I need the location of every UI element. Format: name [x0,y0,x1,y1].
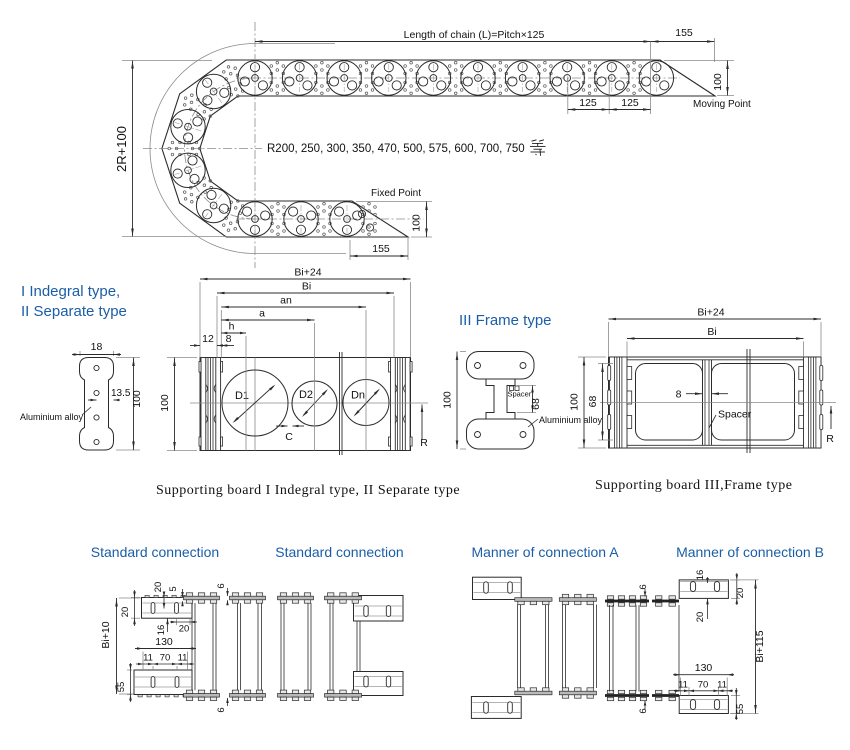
svg-text:100: 100 [569,393,581,411]
svg-text:Aluminium alloy: Aluminium alloy [20,412,84,422]
svg-text:a: a [259,308,265,320]
svg-text:an: an [280,295,292,307]
svg-text:Length of chain (L)=Pitch×125: Length of chain (L)=Pitch×125 [404,29,545,41]
svg-text:R: R [420,437,428,449]
svg-text:68: 68 [530,398,542,410]
svg-text:16: 16 [695,570,706,581]
svg-text:D1: D1 [235,390,249,402]
svg-text:Bi+10: Bi+10 [100,621,112,648]
svg-text:100: 100 [411,214,423,232]
svg-text:5: 5 [168,586,179,591]
svg-text:Bi: Bi [302,281,311,293]
svg-text:D2: D2 [299,389,313,401]
svg-text:I Indegral type,: I Indegral type, [21,283,120,300]
svg-text:70: 70 [698,680,709,691]
svg-text:100: 100 [159,394,171,412]
svg-text:Bi+115: Bi+115 [754,630,766,662]
svg-text:11: 11 [143,653,153,664]
svg-text:20: 20 [179,624,190,635]
svg-text:20: 20 [695,612,706,623]
svg-text:C: C [285,431,293,443]
svg-text:8: 8 [676,389,682,401]
svg-text:6: 6 [638,584,649,589]
svg-text:Standard connection: Standard connection [91,544,219,560]
svg-text:20: 20 [735,588,746,599]
svg-text:R: R [826,433,834,445]
svg-text:Supporting board III,Frame typ: Supporting board III,Frame type [595,478,792,493]
svg-text:100: 100 [442,391,454,409]
svg-text:Manner of connection B: Manner of connection B [676,544,824,560]
svg-text:8: 8 [226,333,232,345]
svg-text:Standard connection: Standard connection [275,544,403,560]
svg-text:20: 20 [153,582,164,593]
svg-text:R200, 250, 300, 350, 470,: R200, 250, 300, 350, 470, 500, 575, 600,… [267,143,525,155]
svg-text:II Separate type: II Separate type [21,303,127,320]
svg-text:2R+100: 2R+100 [114,126,129,172]
svg-text:III Frame type: III Frame type [459,312,552,329]
svg-text:6: 6 [216,707,227,712]
svg-text:Manner of connection A: Manner of connection A [471,544,619,560]
svg-text:13.5: 13.5 [111,388,131,399]
svg-text:125: 125 [621,97,639,109]
svg-text:Fixed Point: Fixed Point [371,188,421,199]
svg-text:Moving Point: Moving Point [693,99,751,110]
svg-text:100: 100 [131,390,143,408]
svg-text:6: 6 [216,583,227,588]
svg-text:Aluminium alloy: Aluminium alloy [539,415,603,425]
svg-text:11: 11 [717,680,727,691]
svg-text:Spacer: Spacer [718,409,752,421]
svg-text:20: 20 [120,607,131,618]
svg-text:h: h [229,321,235,333]
svg-text:18: 18 [91,341,103,353]
svg-text:155: 155 [675,27,693,39]
svg-text:6: 6 [638,708,649,713]
svg-text:Bi: Bi [707,326,716,338]
svg-text:12: 12 [202,333,214,345]
svg-text:Dn: Dn [351,390,365,402]
svg-text:11: 11 [178,653,188,664]
svg-text:Bi+24: Bi+24 [697,307,724,319]
svg-text:130: 130 [695,662,713,674]
svg-text:16: 16 [156,625,167,636]
svg-text:70: 70 [160,653,171,664]
svg-text:130: 130 [155,636,173,648]
svg-text:Bi+24: Bi+24 [294,267,321,279]
svg-text:68: 68 [587,396,599,408]
svg-text:100: 100 [712,73,724,91]
svg-text:125: 125 [579,97,597,109]
svg-text:55: 55 [116,682,127,693]
svg-text:Supporting board I Indegral ty: Supporting board I Indegral type, II Sep… [156,483,460,498]
svg-text:11: 11 [678,680,688,691]
svg-text:Spacer: Spacer [508,390,532,399]
svg-text:55: 55 [735,704,746,715]
svg-text:155: 155 [372,243,390,255]
